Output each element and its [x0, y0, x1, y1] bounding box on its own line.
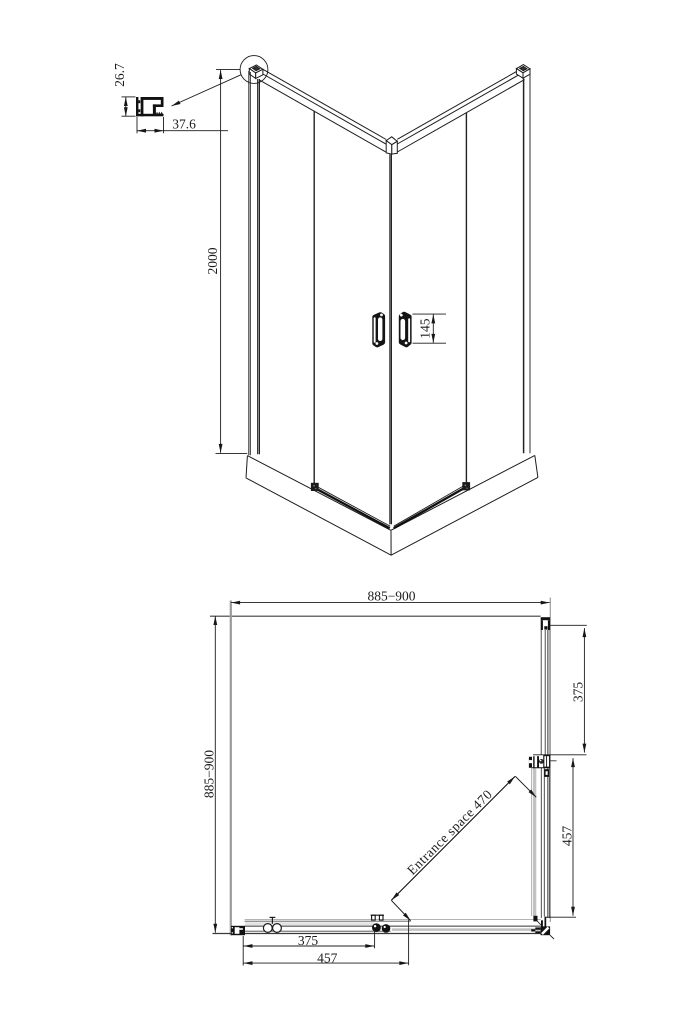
svg-text:26.7: 26.7 [112, 63, 127, 87]
svg-text:37.6: 37.6 [172, 116, 196, 131]
svg-text:885−900: 885−900 [201, 750, 216, 798]
svg-text:885−900: 885−900 [367, 588, 415, 603]
svg-text:457: 457 [317, 951, 338, 966]
svg-text:2000: 2000 [205, 247, 220, 274]
svg-text:375: 375 [298, 933, 319, 948]
svg-text:145: 145 [418, 318, 433, 339]
svg-text:375: 375 [570, 682, 585, 703]
svg-text:457: 457 [560, 826, 575, 847]
